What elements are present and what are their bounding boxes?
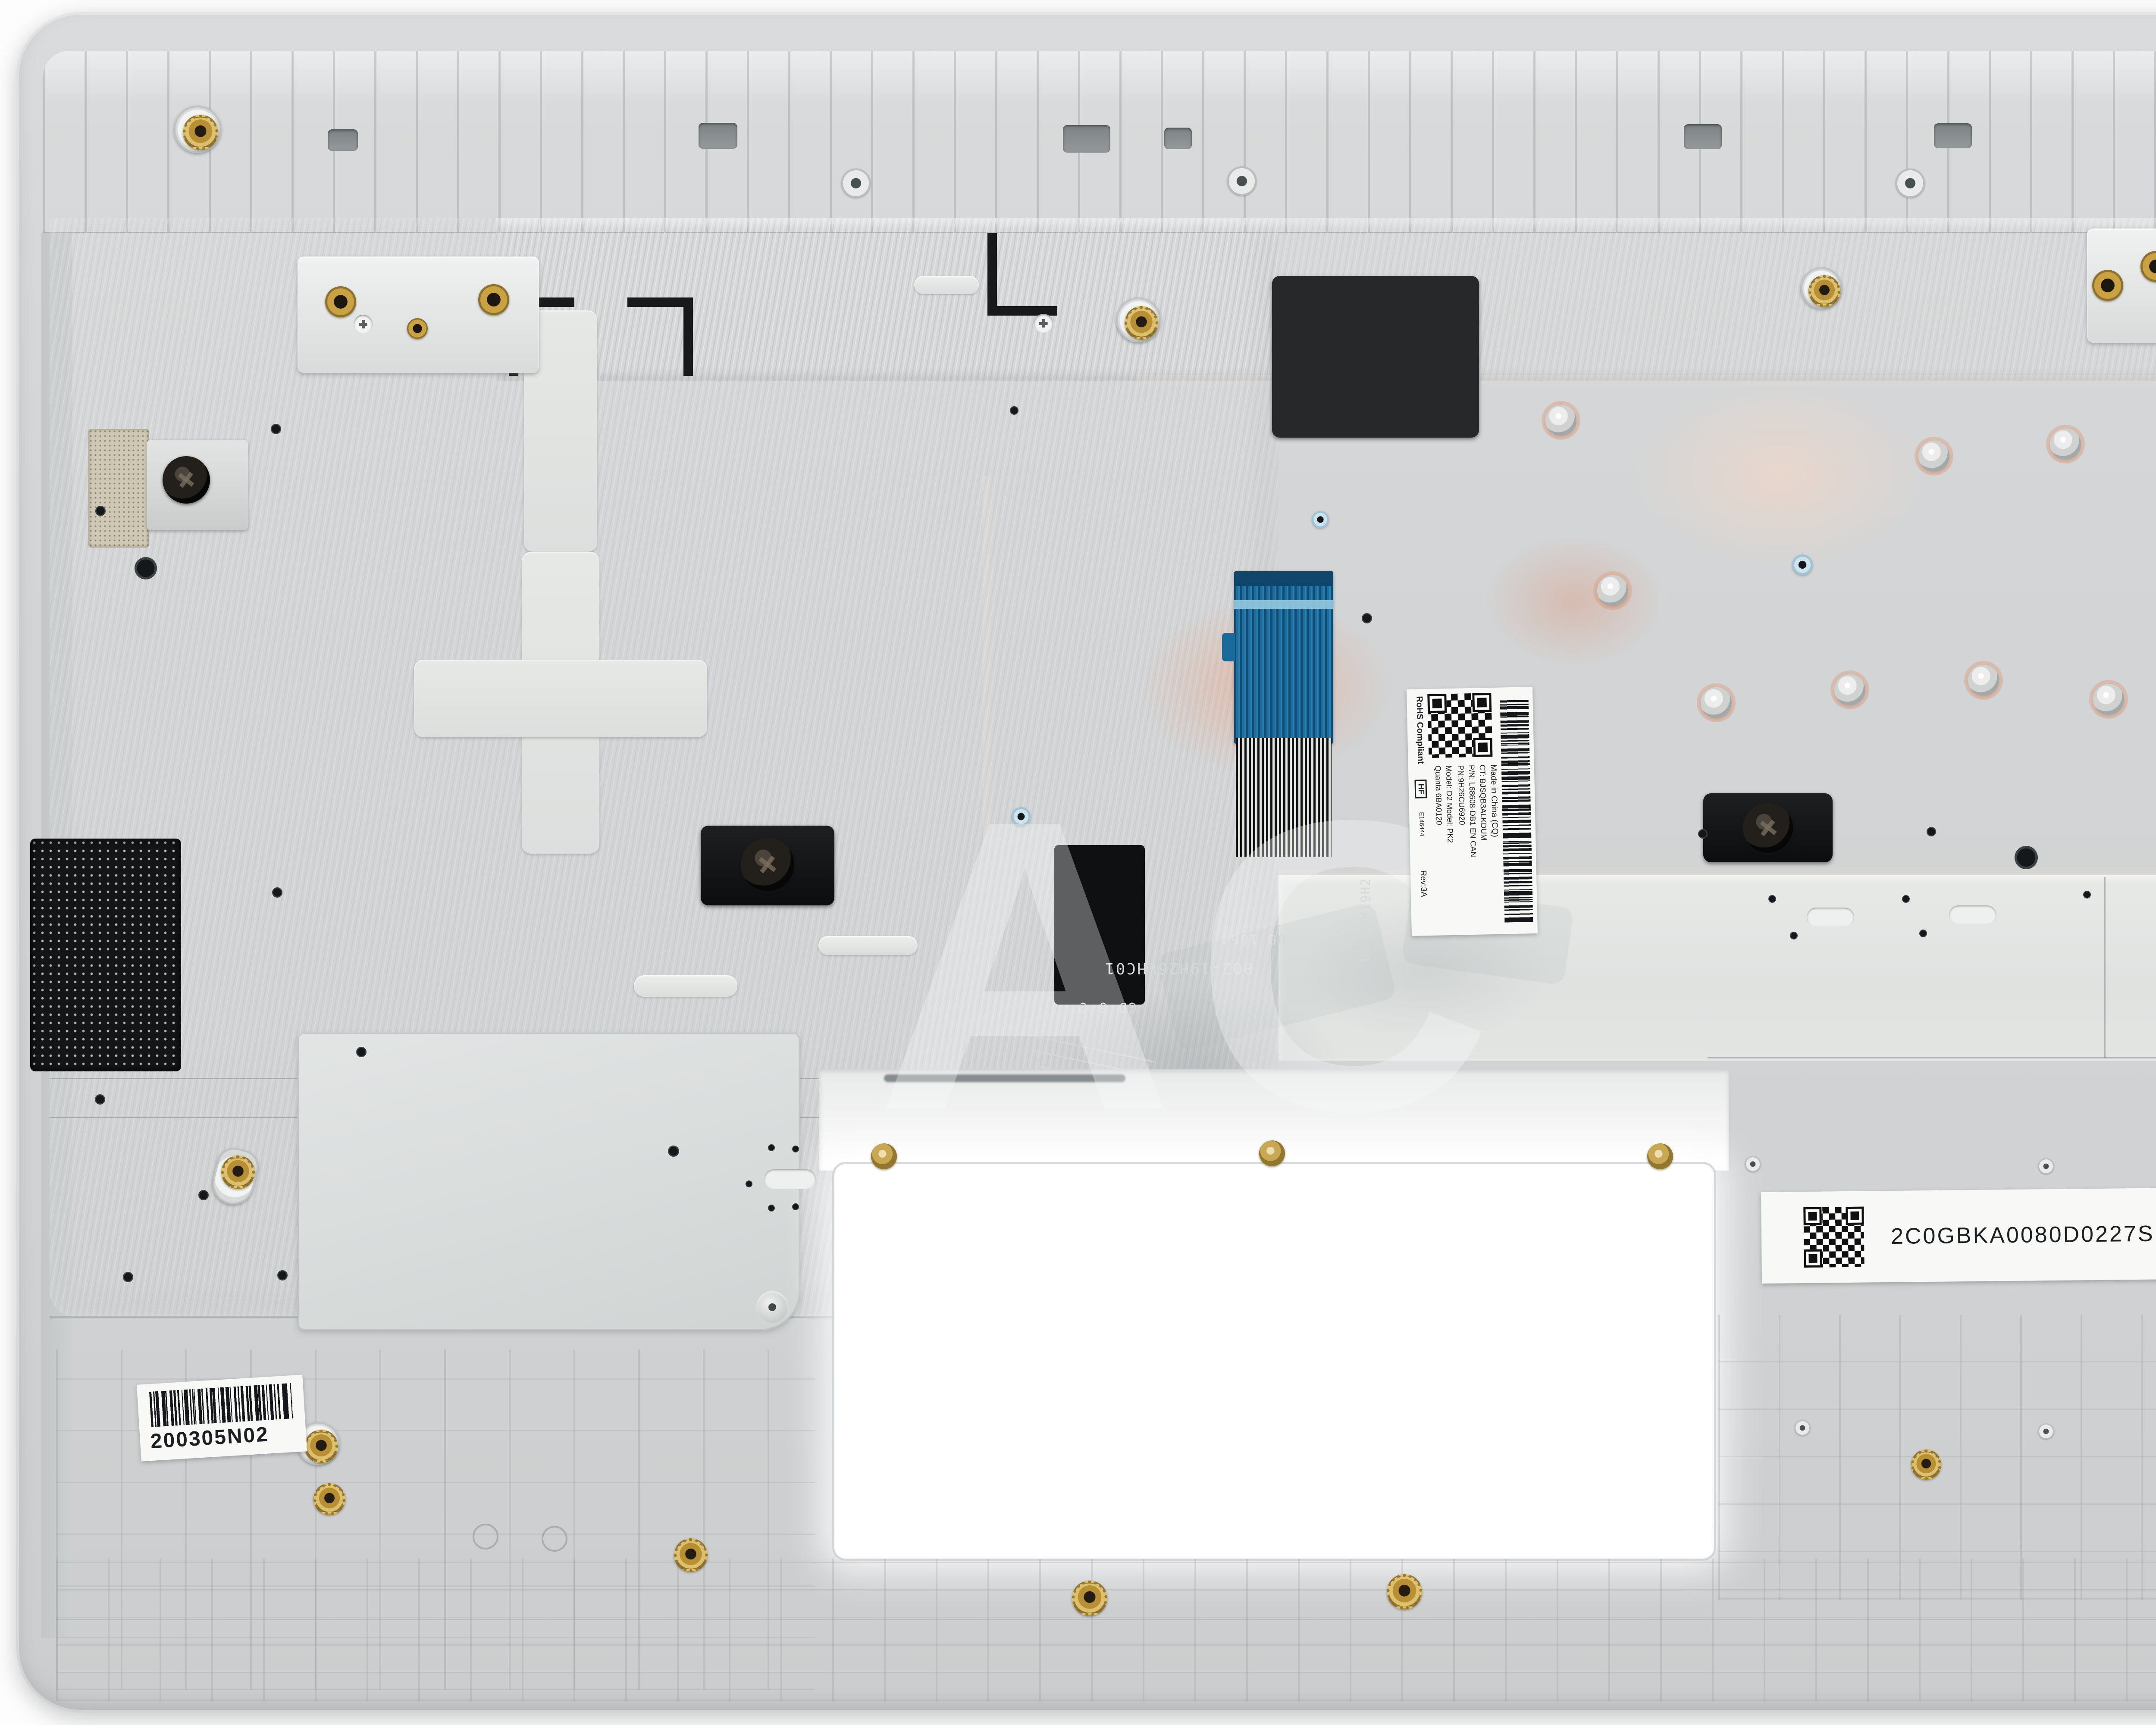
cable-stiffener [1234, 571, 1333, 586]
rivet-dome [2093, 684, 2124, 715]
product-photo-laptop-palmrest: 002-19H26LHC01 GD 6 C 00 1064 UK HPM19H2… [0, 0, 2156, 1725]
hole [1919, 930, 1927, 937]
rivet-dome [1597, 575, 1628, 606]
kb-label-rev: Rev:3A [1418, 870, 1428, 897]
stamped-bump [914, 276, 979, 294]
hole [1927, 827, 1936, 836]
alignment-hole [354, 315, 373, 334]
label-qr-code [1803, 1207, 1864, 1268]
left-speaker-grille [30, 839, 181, 1071]
qr-finder [1804, 1249, 1822, 1268]
brass-insert [1072, 1581, 1107, 1616]
copper-keyboard-plate [983, 375, 2156, 877]
flex-part-number: 002-19H26LHC01 [1104, 959, 1253, 977]
hole [356, 1047, 367, 1057]
flex-dark-tab [1054, 845, 1145, 1005]
rivet-dome [1834, 674, 1865, 705]
flex-lot-code: 00 1064 [1220, 931, 1286, 947]
rivet-dome [1968, 665, 1999, 696]
kb-label-pn: P/N: L68608-DB1 EN CAN [1467, 765, 1478, 857]
stamped-bump [818, 936, 918, 955]
hole [1362, 613, 1372, 623]
hole [792, 1203, 799, 1210]
qr-finder [1803, 1207, 1821, 1225]
brass-insert [183, 115, 218, 150]
hole [768, 1205, 775, 1212]
oval-slot [764, 1169, 816, 1189]
hole [271, 424, 281, 434]
flex-grade-code: GD 6 C [1078, 999, 1137, 1015]
rivet-dome [1701, 687, 1732, 718]
brass-insert [1387, 1574, 1422, 1609]
screw-eyelet [1312, 511, 1329, 528]
rivet [1745, 1156, 1761, 1172]
molded-ribs [56, 1559, 2156, 1701]
mold-date-stamp [542, 1526, 567, 1552]
keyboard-vendor-label: Made in China (CQ) CT: BJSQB3ALKDUM P/N:… [1407, 687, 1538, 936]
black-cover-sticker [1272, 276, 1479, 438]
black-screw [163, 456, 210, 504]
board-code-text: 2C0GBKA0080D0227SH9 [1891, 1221, 2156, 1249]
label-barcode [149, 1383, 293, 1427]
hole [1698, 829, 1708, 839]
oval-slot [1949, 905, 1996, 924]
brass-insert [1125, 306, 1158, 340]
hole [746, 1180, 752, 1187]
hole [2015, 846, 2038, 869]
touchpad-screw-dimple [756, 1291, 788, 1323]
touchpad-window-cutout [834, 1164, 1714, 1559]
brass-insert [221, 1155, 255, 1189]
hole [1768, 895, 1776, 903]
flex-side-code: UK HPM19H2 [1358, 877, 1373, 961]
kb-label-pn2: PN:9H26CU6920 [1456, 765, 1467, 825]
screw-eyelet [1012, 807, 1031, 826]
kb-label-vendor: Quanta 6BA0120 [1433, 765, 1444, 825]
hole [123, 1272, 133, 1282]
brass-insert [1911, 1450, 1941, 1480]
molding-slot [328, 129, 358, 151]
kb-label-models: Model: D2 Model: PK2 [1444, 765, 1455, 843]
serial-label: 200305N02 [137, 1374, 307, 1461]
qr-finder [1473, 738, 1492, 757]
hole [1902, 895, 1910, 903]
serial-label-code: 200305N02 [150, 1422, 269, 1453]
rib-line [56, 1619, 2156, 1620]
alignment-hole [1034, 314, 1053, 333]
rivet [841, 169, 871, 198]
stamped-channel [414, 660, 707, 737]
kb-label-ul-number: E146444 [1418, 812, 1426, 836]
kb-label-hf-mark: HF [1414, 780, 1427, 798]
plate-seam [2104, 877, 2106, 1058]
rivet [2038, 1158, 2054, 1174]
board-code-label: 2C0GBKA0080D0227SH9 [1761, 1186, 2156, 1284]
molding-slot [1684, 124, 1722, 149]
rivet [1896, 169, 1925, 198]
keyboard-ribbon-cable [1234, 571, 1333, 744]
qr-finder [1472, 693, 1492, 712]
cable-band [1234, 600, 1333, 609]
plate-seam [1708, 1057, 2156, 1058]
hinge-eyelet [407, 318, 428, 339]
gold-screw [1647, 1143, 1673, 1169]
cable-tab [1222, 633, 1235, 661]
rivet-dome [1918, 441, 1949, 472]
hole [1010, 406, 1018, 415]
hinge-eyelet [325, 286, 356, 317]
touchpad-module-plate [298, 1033, 800, 1330]
hole [768, 1144, 775, 1151]
gold-screw [1259, 1140, 1285, 1166]
metal-cutout [627, 297, 693, 376]
screw-eyelet [1792, 554, 1813, 575]
flex-conductors [1236, 738, 1332, 857]
qr-finder [1427, 694, 1447, 713]
black-screw [741, 838, 794, 891]
stamped-bump [634, 975, 737, 997]
label-barcode [1500, 700, 1533, 922]
hole [272, 887, 282, 898]
antenna-mesh-pad [88, 429, 149, 548]
kb-label-made-in: Made in China (CQ) [1489, 764, 1500, 837]
hole [277, 1270, 288, 1280]
label-qr-code [1427, 693, 1492, 758]
hinge-eyelet [2092, 270, 2123, 301]
hole [95, 506, 106, 516]
gold-screw [871, 1143, 897, 1169]
rivet [1227, 166, 1257, 196]
hole [2083, 891, 2091, 899]
molding-slot [1164, 128, 1192, 149]
mold-date-stamp [473, 1524, 498, 1550]
hinge-eyelet [478, 284, 509, 315]
brass-insert [313, 1483, 345, 1515]
oval-slot [1807, 908, 1854, 927]
brass-insert [304, 1430, 338, 1463]
hole [198, 1190, 209, 1200]
hole [95, 1094, 105, 1105]
molding-slot [1063, 125, 1110, 153]
molding-slot [1934, 123, 1972, 148]
metal-cutout [987, 233, 1057, 316]
qr-finder [1846, 1207, 1864, 1225]
molding-slot [699, 123, 737, 149]
rivet-dome [1545, 405, 1576, 436]
black-screw [1743, 803, 1793, 853]
hole [792, 1146, 799, 1152]
brass-insert [1808, 275, 1840, 307]
hole [1790, 932, 1798, 939]
kb-label-rohs: RoHS Compliant [1414, 696, 1425, 764]
adhesive-residue [884, 1074, 1125, 1082]
kb-label-ct: CT: BJSQB3ALKDUM [1478, 764, 1489, 840]
hole [668, 1146, 679, 1157]
hole [135, 557, 157, 579]
brass-insert [674, 1538, 708, 1572]
rivet-dome [2050, 429, 2081, 460]
